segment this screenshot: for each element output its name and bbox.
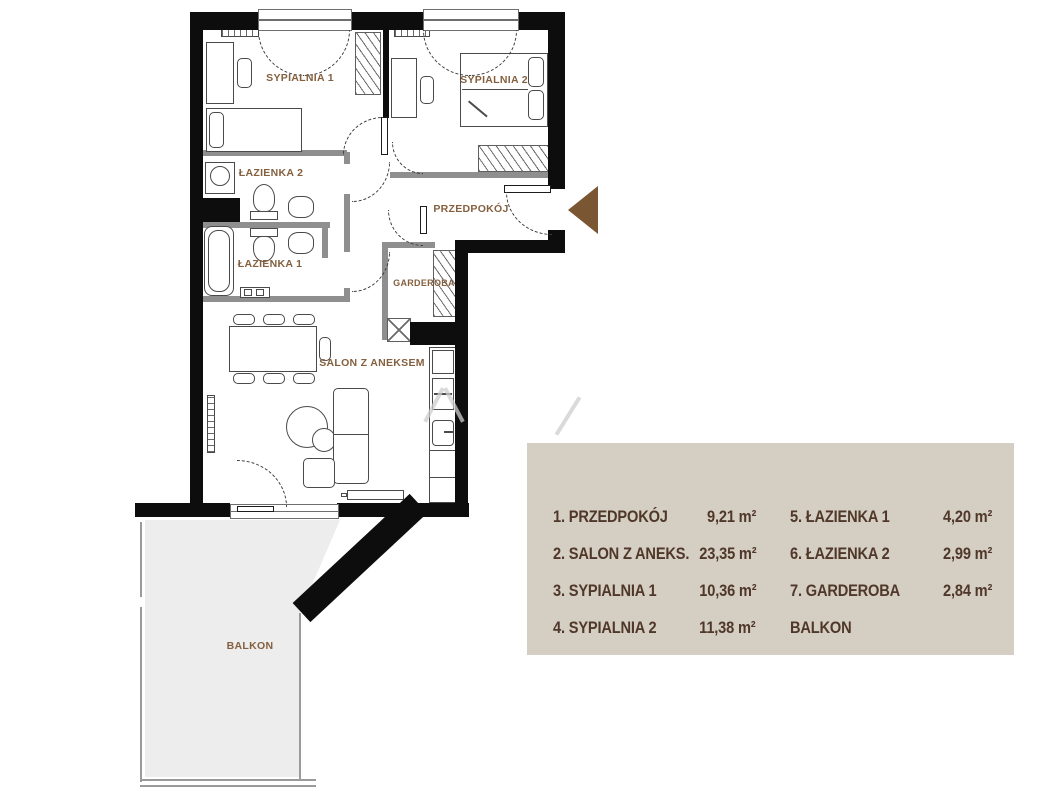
- counter-line: [429, 477, 457, 478]
- legend-area: 11,38 m²: [700, 617, 756, 639]
- legend-label: 6. ŁAZIENKA 2: [790, 543, 890, 565]
- wall: [548, 12, 565, 189]
- wall: [203, 296, 350, 302]
- balcony-floor: [140, 517, 345, 790]
- window: [423, 9, 519, 31]
- door-arc: [392, 142, 423, 174]
- radiator: [207, 395, 215, 453]
- kitchen-sink: [432, 420, 454, 446]
- chair: [263, 314, 285, 325]
- desk: [391, 58, 417, 118]
- pillow: [528, 57, 544, 87]
- wall: [344, 288, 350, 302]
- fridge: [432, 350, 454, 374]
- wall: [322, 222, 328, 258]
- tv-bench-knob: [341, 493, 347, 497]
- legend-label: 5. ŁAZIENKA 1: [790, 506, 890, 528]
- legend-label: 7. GARDEROBA: [790, 580, 900, 602]
- shaft-box: [387, 318, 411, 342]
- door-arc: [388, 210, 423, 246]
- wall: [344, 194, 350, 252]
- balcony-rail-bottom-outer: [140, 785, 316, 787]
- bed-line: [462, 89, 528, 90]
- wall: [455, 240, 565, 253]
- legend-area: 4,20 m²: [943, 506, 992, 528]
- washbasin-tap: [256, 289, 264, 296]
- room-label-salon: SALON Z ANEKSEM: [319, 357, 425, 369]
- chair: [420, 76, 434, 104]
- toilet-tank: [250, 211, 278, 220]
- wall: [190, 12, 203, 517]
- desk: [206, 42, 234, 104]
- bathtub-inner: [208, 230, 230, 292]
- window-swing-arc: [423, 30, 470, 76]
- room-label-balkon: BALKON: [227, 640, 274, 652]
- faucet: [444, 431, 454, 433]
- balcony-rail-right: [299, 613, 301, 779]
- window: [258, 9, 352, 31]
- balcony-door-arc: [237, 460, 287, 507]
- watermark-fragment: [555, 396, 582, 435]
- wardrobe: [478, 145, 552, 172]
- room-label-przedpokoj: PRZEDPOKÓJ: [433, 203, 508, 215]
- room-label-garderoba: GARDEROBA: [393, 278, 455, 288]
- toilet: [253, 184, 275, 212]
- room-label-lazienka1: ŁAZIENKA 1: [238, 258, 302, 270]
- door-arc: [343, 117, 383, 155]
- washbasin-tap: [244, 289, 252, 296]
- legend-area: 2,84 m²: [943, 580, 992, 602]
- chair: [233, 314, 255, 325]
- chair: [263, 373, 285, 384]
- tv-bench: [347, 490, 404, 500]
- chair: [293, 314, 315, 325]
- entry-door-arc: [506, 192, 552, 235]
- floor-plan-page: SYPIALNIA 1 SYPIALNIA 2 ŁAZIENKA 2 ŁAZIE…: [0, 0, 1056, 802]
- counter-line: [429, 450, 457, 451]
- legend-area: 10,36 m²: [699, 580, 756, 602]
- closet: [355, 32, 381, 95]
- sink: [288, 232, 314, 254]
- sofa-chaise: [303, 458, 335, 488]
- legend-label: BALKON: [790, 617, 852, 639]
- wall: [135, 503, 230, 517]
- legend-label: 1. PRZEDPOKÓJ: [553, 506, 668, 528]
- wall: [455, 253, 468, 517]
- window-swing-arc: [304, 30, 350, 76]
- legend-label: 4. SYPIALNIA 2: [553, 617, 656, 639]
- chair: [293, 373, 315, 384]
- entrance-arrow: [568, 186, 598, 234]
- chair: [233, 373, 255, 384]
- wall: [383, 30, 389, 118]
- legend-area: 9,21 m²: [707, 506, 756, 528]
- balcony-rail-bottom: [140, 779, 316, 781]
- pillow: [209, 112, 224, 148]
- room-label-lazienka2: ŁAZIENKA 2: [239, 167, 303, 179]
- dining-table: [229, 326, 317, 372]
- washing-machine-drum: [210, 166, 230, 186]
- sofa: [333, 388, 369, 484]
- legend-panel: 1. PRZEDPOKÓJ 9,21 m² 5. ŁAZIENKA 1 4,20…: [527, 443, 1014, 655]
- balcony-rail-left-lower: [140, 607, 142, 782]
- legend-label: 2. SALON Z ANEKS.: [553, 543, 689, 565]
- window-swing-arc: [258, 30, 304, 76]
- legend-area: 2,99 m²: [943, 543, 992, 565]
- wall: [350, 12, 423, 30]
- chair: [237, 58, 252, 88]
- pillow: [528, 90, 544, 120]
- room-label-sypialnia1: SYPIALNIA 1: [266, 72, 334, 84]
- legend-area: 23,35 m²: [699, 543, 756, 565]
- balcony-rail-left: [140, 522, 142, 597]
- sink: [288, 196, 314, 218]
- sofa-cushion-line: [334, 434, 368, 435]
- wall: [390, 172, 548, 178]
- room-label-sypialnia2: SYPIALNIA 2: [460, 74, 528, 86]
- door-arc: [352, 162, 390, 202]
- wall: [410, 322, 468, 345]
- legend-label: 3. SYPIALNIA 1: [553, 580, 656, 602]
- wall: [190, 198, 240, 222]
